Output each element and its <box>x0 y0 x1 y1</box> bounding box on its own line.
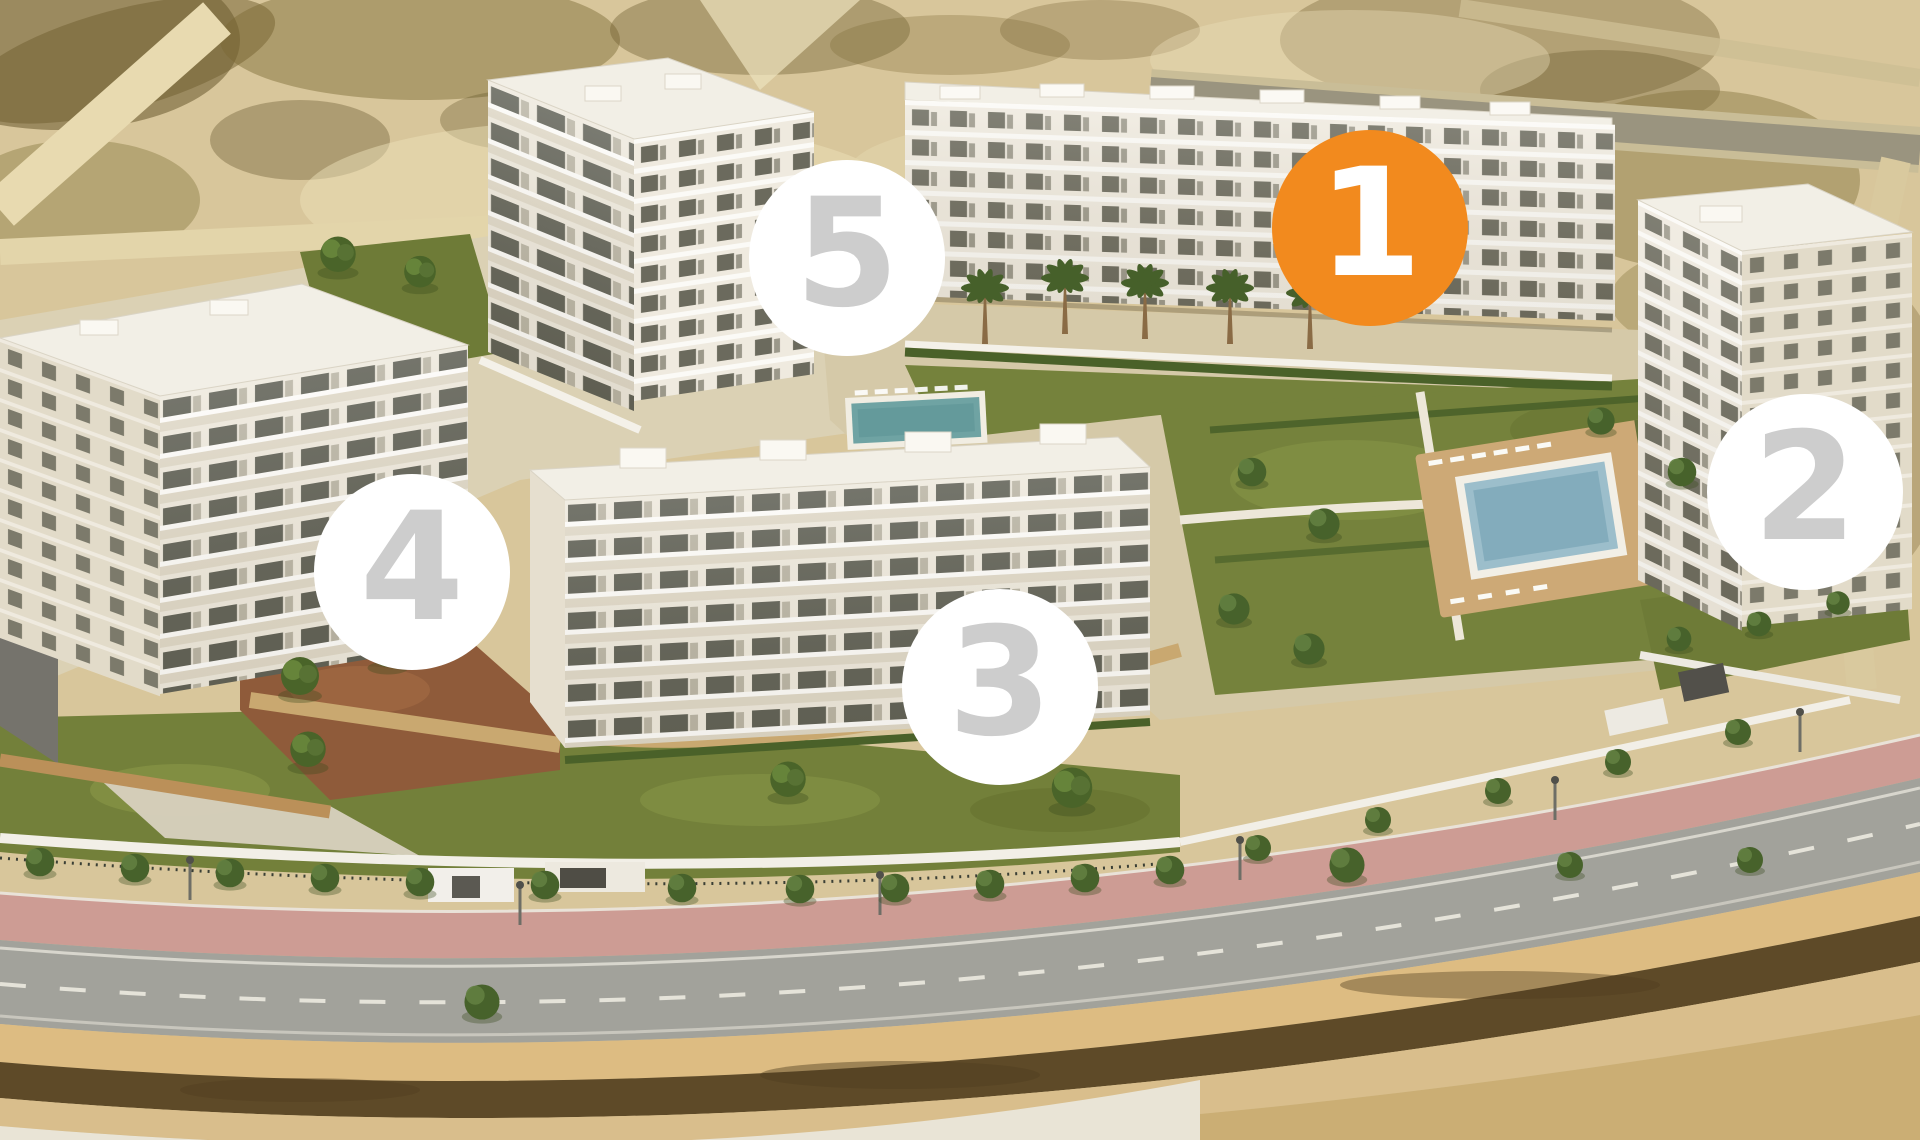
building-marker-2[interactable]: 2 <box>1707 394 1903 590</box>
building-marker-2-label: 2 <box>1753 413 1857 563</box>
building-marker-4[interactable]: 4 <box>314 474 510 670</box>
building-marker-3-label: 3 <box>948 608 1052 758</box>
building-marker-1[interactable]: 1 <box>1272 130 1468 326</box>
building-marker-4-label: 4 <box>360 493 464 643</box>
building-marker-5-label: 5 <box>795 179 899 329</box>
building-marker-5[interactable]: 5 <box>749 160 945 356</box>
building-marker-1-label: 1 <box>1318 149 1422 299</box>
site-aerial-view: 1 2 3 4 5 <box>0 0 1920 1140</box>
building-marker-3[interactable]: 3 <box>902 589 1098 785</box>
aerial-scene-render <box>0 0 1920 1140</box>
garage-door <box>452 876 480 898</box>
garage-door <box>560 868 606 888</box>
building-1 <box>905 82 1615 330</box>
